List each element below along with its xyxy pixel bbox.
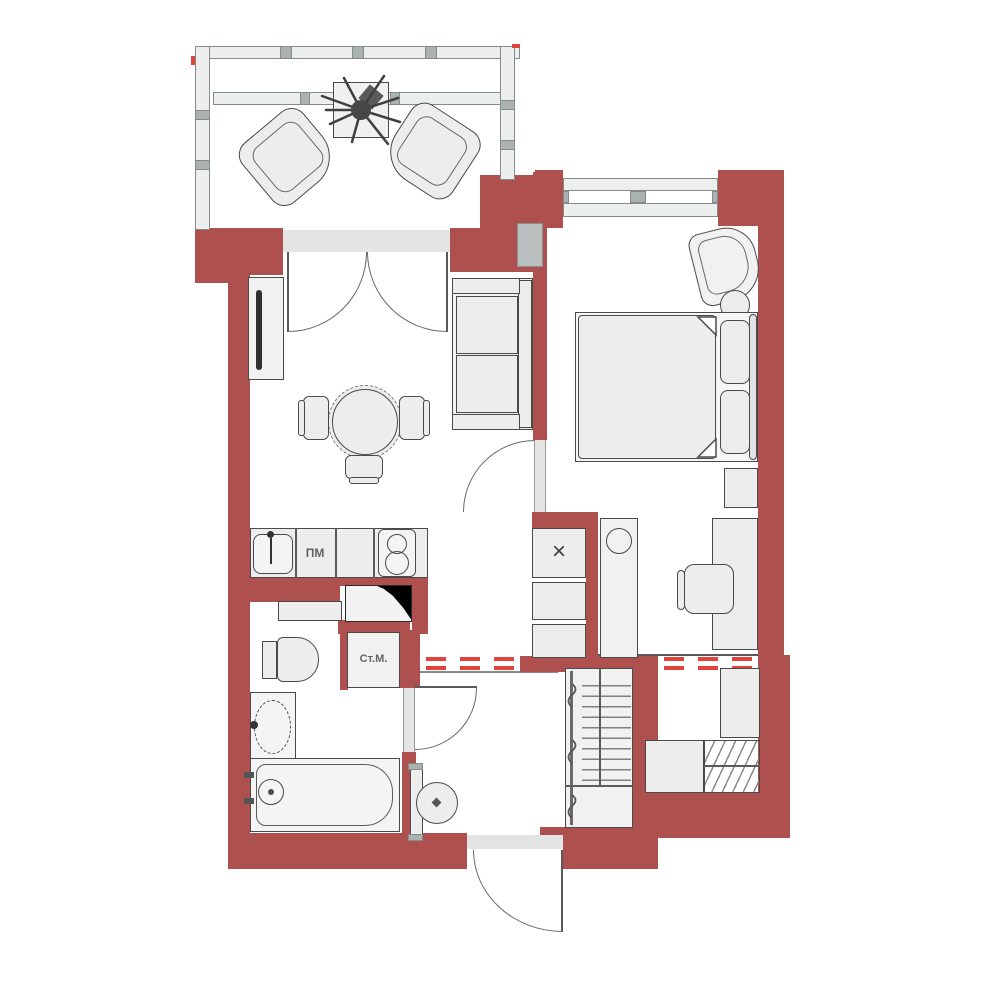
window-mullion: [390, 92, 400, 105]
kitchen-sink: [253, 534, 293, 574]
bathroom-door-opening: [403, 688, 415, 752]
balcony-window-band-left: [195, 46, 210, 230]
dining-table-top: [332, 389, 398, 455]
dining-chair-back: [423, 400, 430, 436]
tv: [256, 290, 262, 370]
window-mullion: [500, 100, 515, 110]
headboard: [749, 314, 757, 460]
dining-chair-back: [298, 400, 305, 436]
window-mullion: [712, 191, 718, 203]
french-door-swing-right: [367, 252, 447, 332]
shoe-rack: [704, 740, 760, 793]
wall: [228, 578, 340, 602]
washing-machine: Ст.М.: [347, 632, 400, 688]
fridge-door-wedge: [346, 586, 411, 621]
wall: [758, 170, 784, 660]
office-chair-back: [677, 570, 685, 610]
sofa-cushion: [456, 355, 518, 413]
wall: [228, 250, 250, 840]
shoe-rack-shelf-line: [704, 765, 760, 767]
counter-divider: [335, 528, 337, 578]
window-mullion: [195, 110, 210, 120]
wall: [412, 576, 428, 634]
bath-fixture: [244, 798, 254, 804]
pillow: [720, 320, 750, 384]
sofa-back: [518, 280, 532, 428]
window-mullion: [352, 46, 364, 59]
entrance-door-swing: [473, 850, 563, 932]
bedroom-window-outer: [563, 178, 718, 191]
vent-duct-block: [517, 223, 543, 267]
wall: [758, 655, 790, 795]
stove-burner: [385, 551, 409, 575]
cabinet-cap: [408, 763, 423, 770]
dining-chair: [303, 396, 329, 440]
office-chair: [684, 564, 734, 614]
window-mullion: [500, 140, 515, 150]
red-corner-accent: [191, 56, 195, 65]
balcony-window-band-right: [500, 46, 515, 180]
red-corner-accent: [512, 44, 520, 48]
wall: [635, 793, 790, 838]
faucet-icon: [250, 721, 258, 729]
wall: [586, 512, 598, 662]
toilet-tank: [262, 641, 277, 679]
window-mullion: [563, 191, 569, 203]
window-mullion: [300, 92, 310, 105]
storage-unit: [645, 740, 704, 793]
mattress: [578, 315, 716, 459]
sofa-armrest: [452, 414, 520, 430]
counter-divider: [373, 528, 375, 578]
cabinet-cap: [408, 834, 423, 841]
nightstand: [724, 468, 758, 508]
faucet-stem: [270, 538, 272, 564]
vent-shaft-symbol: ×: [533, 529, 585, 575]
sofa-armrest: [452, 278, 520, 294]
french-door-swing-left: [288, 252, 367, 332]
window-mullion: [280, 46, 292, 59]
wall: [480, 175, 535, 230]
bath-fixture: [244, 772, 254, 778]
fridge: [345, 585, 412, 622]
toilet-bowl: [277, 637, 319, 682]
window-mullion: [195, 160, 210, 170]
wardrobe-rod: [570, 671, 573, 825]
wall: [228, 833, 467, 869]
floor-plan: × ПМ Ст.М.: [0, 0, 1000, 1000]
washbasin-bowl: [254, 700, 291, 754]
shelf: [278, 601, 342, 621]
bathroom-door-swing: [415, 688, 477, 750]
wardrobe-divider: [599, 668, 601, 786]
dining-chair: [399, 396, 425, 440]
bedroom-door-swing: [463, 440, 535, 512]
window-mullion: [425, 46, 437, 59]
dining-chair: [345, 455, 383, 479]
wall: [400, 630, 420, 688]
wall: [535, 170, 563, 228]
entrance-door-opening: [467, 835, 563, 849]
faucet-icon: [267, 531, 274, 538]
dishwasher-label: ПМ: [295, 545, 335, 561]
pillow: [720, 390, 750, 454]
bedroom-door-opening: [534, 440, 546, 512]
balcony-door-opening: [283, 230, 450, 252]
sofa-cushion: [456, 296, 518, 354]
boiler-top-circle: [606, 528, 632, 554]
dining-chair-back: [349, 477, 379, 484]
wardrobe-hangers: [582, 676, 631, 784]
planter-table: [333, 82, 389, 138]
bedroom-window-inner: [563, 203, 718, 217]
vent-shaft-cell: ×: [532, 528, 586, 578]
bathtub-drain-dot: [268, 789, 274, 795]
wardrobe-shelf-line: [565, 785, 633, 787]
storage-unit: [720, 668, 760, 738]
utility-cabinet: [532, 582, 586, 620]
utility-cabinet: [532, 624, 586, 658]
tv-stand: [248, 277, 284, 380]
washing-machine-label: Ст.М.: [348, 633, 399, 685]
window-mullion: [630, 191, 646, 203]
